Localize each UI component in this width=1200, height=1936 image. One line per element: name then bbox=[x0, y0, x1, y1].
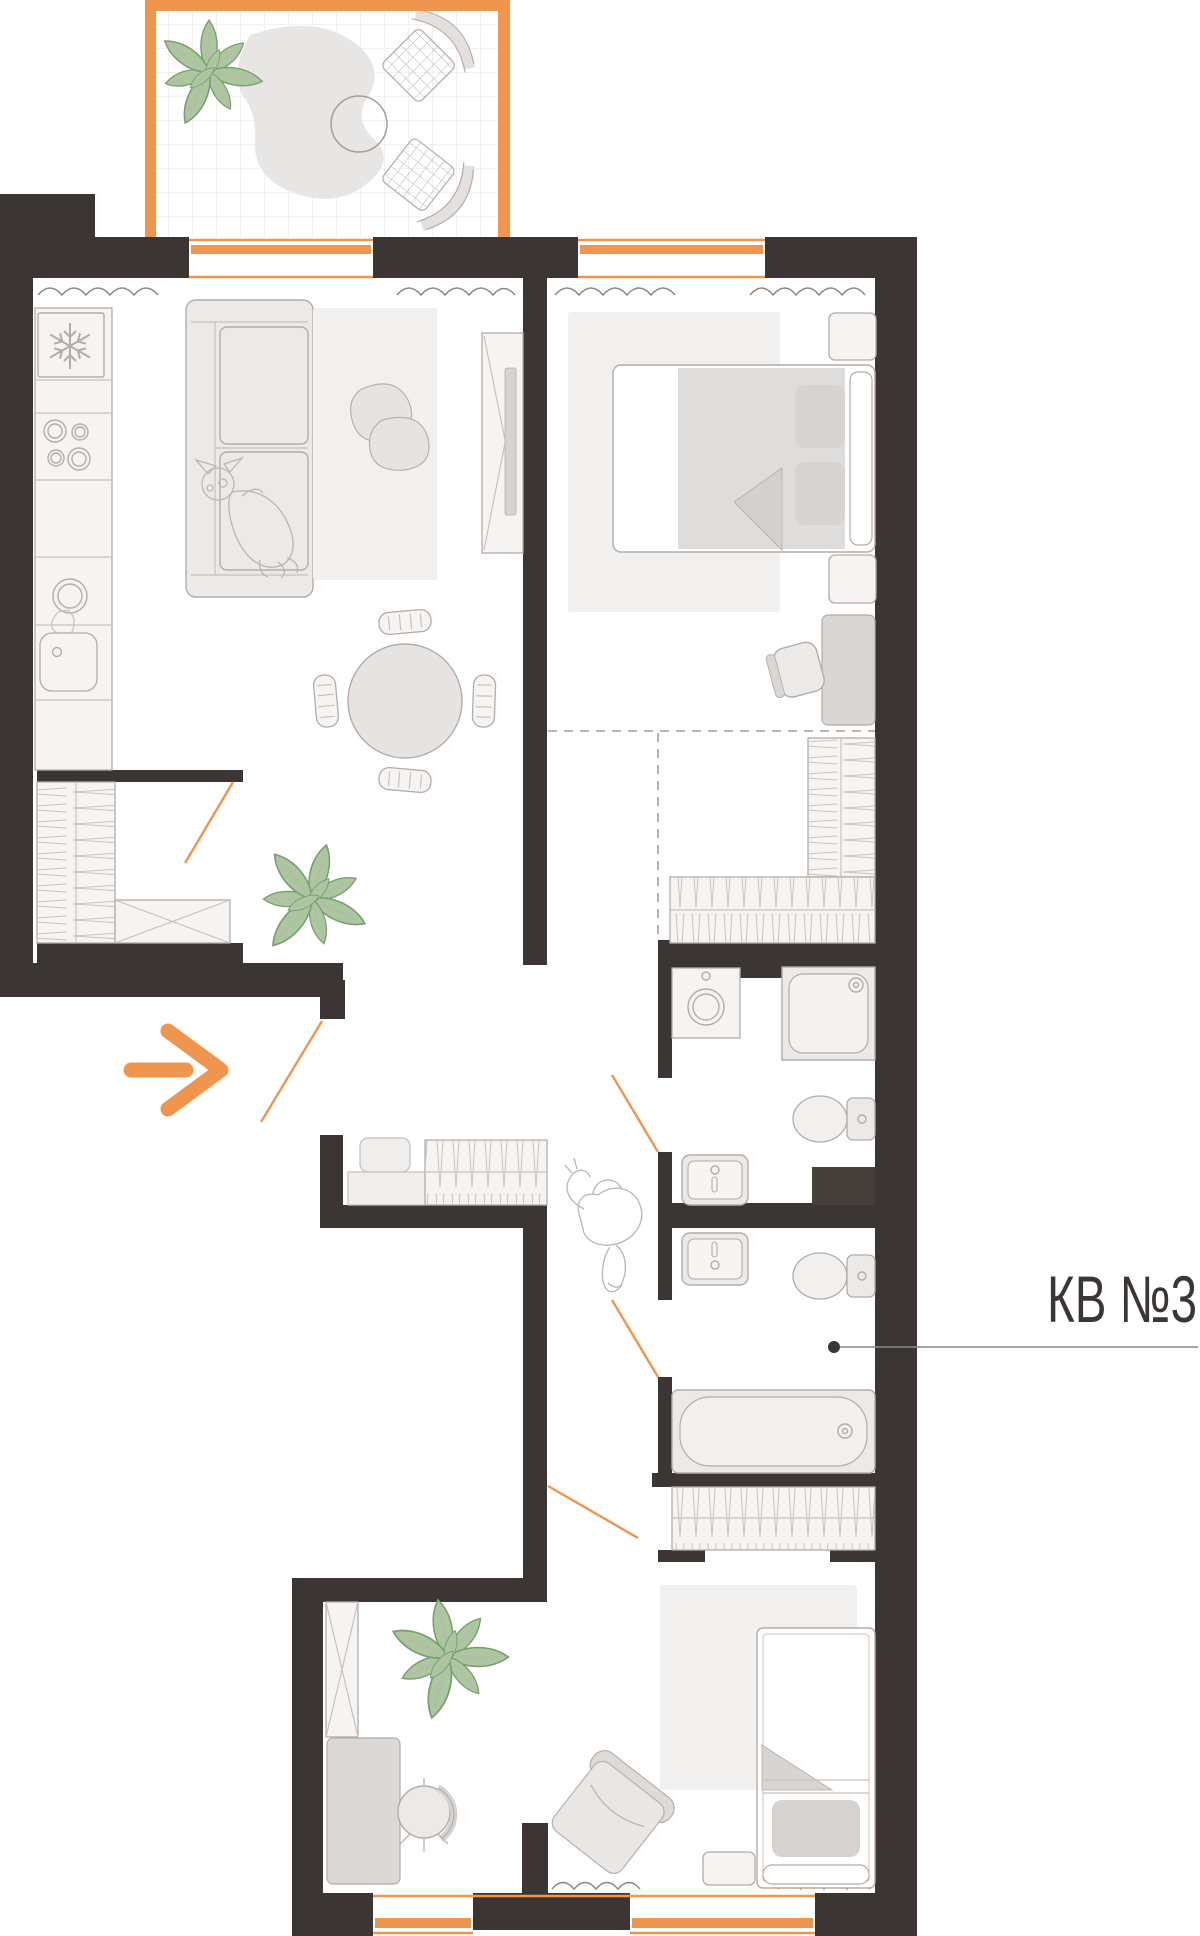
bathroom1-sink bbox=[682, 1155, 748, 1205]
nightstand bbox=[829, 313, 876, 360]
bathroom-2 bbox=[672, 1233, 875, 1473]
balcony-rail-left bbox=[145, 0, 156, 237]
dressing-wardrobe bbox=[670, 738, 875, 943]
duct-box bbox=[812, 1167, 875, 1205]
entry-closet bbox=[37, 782, 230, 943]
wall-bedroom2-top bbox=[292, 1578, 523, 1602]
balcony-rail-top bbox=[145, 0, 510, 11]
bottom-window2-sill bbox=[632, 1918, 813, 1928]
leader-dot bbox=[828, 1341, 840, 1353]
hallway-plant bbox=[246, 831, 384, 971]
wall-wardrobe-return-left bbox=[658, 1550, 705, 1562]
nightstand bbox=[703, 1852, 755, 1885]
desk-chair bbox=[764, 640, 826, 701]
dining-chair bbox=[313, 674, 339, 728]
pillow bbox=[772, 1800, 860, 1857]
entrance-hall bbox=[131, 1031, 642, 1292]
curtain-living bbox=[397, 288, 515, 295]
hall-bench bbox=[348, 1138, 425, 1205]
bed-single bbox=[757, 1628, 875, 1888]
pillow bbox=[795, 462, 845, 525]
wall-entrance-jamb-top bbox=[320, 980, 345, 1019]
wall-segment bbox=[0, 194, 95, 238]
bedroom2-wardrobe bbox=[672, 1487, 875, 1550]
wall-bath2-left bbox=[658, 1228, 672, 1300]
curtain-bedroom-b bbox=[750, 288, 865, 295]
wall-segment bbox=[473, 1893, 630, 1930]
door-entrance bbox=[261, 1021, 322, 1122]
bedroom-2 bbox=[326, 1487, 875, 1888]
floor-plan: КВ №3 bbox=[0, 0, 1200, 1936]
wall-right-exterior bbox=[875, 237, 917, 1936]
tall-cabinet bbox=[326, 1602, 358, 1737]
curtain-kitchen bbox=[38, 288, 158, 295]
hall-wardrobe bbox=[425, 1140, 547, 1205]
office-chair bbox=[398, 1778, 454, 1852]
wall-bath2-bottom bbox=[652, 1473, 875, 1487]
balcony bbox=[145, 0, 510, 237]
balcony-rail-right bbox=[498, 0, 510, 237]
desk bbox=[822, 615, 875, 725]
wall-bath-divider bbox=[658, 1203, 875, 1228]
wall-segment bbox=[815, 1893, 917, 1936]
door-swings bbox=[185, 782, 658, 1538]
wall-segment bbox=[292, 1893, 373, 1936]
bedroom-window-sill bbox=[580, 245, 763, 254]
tv bbox=[505, 368, 516, 515]
washing-machine bbox=[672, 968, 740, 1038]
wall-hall-bottom bbox=[320, 1205, 547, 1228]
wall-hall-top bbox=[0, 963, 343, 997]
floor-plan-drawing bbox=[0, 0, 1200, 1936]
living-rug bbox=[313, 308, 437, 580]
curtain-bedroom-a bbox=[555, 288, 675, 295]
nightstand bbox=[829, 555, 876, 603]
door-bedroom2 bbox=[548, 1486, 638, 1538]
curtain-bedroom2-a bbox=[552, 1883, 640, 1890]
kitchen-living-room bbox=[35, 300, 523, 971]
bed-double bbox=[613, 365, 875, 552]
apartment-label: КВ №3 bbox=[1010, 1266, 1197, 1332]
wall-corridor-left bbox=[523, 1228, 547, 1602]
bedroom-1 bbox=[548, 312, 876, 943]
dining-chair bbox=[378, 767, 432, 793]
dining-chair bbox=[472, 675, 496, 728]
bathtub bbox=[672, 1390, 875, 1473]
wall-entrance-jamb-bottom bbox=[320, 1135, 343, 1208]
balcony-door-sill bbox=[191, 245, 371, 254]
bedroom2-plant bbox=[384, 1589, 519, 1727]
dining-chair bbox=[378, 609, 432, 635]
wall-closet-top bbox=[37, 770, 243, 782]
sofa bbox=[186, 300, 313, 597]
wall-bath1-left bbox=[658, 965, 672, 1078]
dining-table bbox=[348, 644, 462, 758]
armchair bbox=[543, 1745, 679, 1881]
wall-wardrobe-return-right bbox=[830, 1550, 875, 1562]
wall-segment bbox=[373, 237, 578, 278]
wall-closet-bottom bbox=[37, 943, 243, 963]
shower bbox=[782, 967, 875, 1060]
rug-blob bbox=[370, 417, 430, 470]
bottom-window1-sill bbox=[375, 1918, 471, 1928]
toilet bbox=[793, 1253, 875, 1299]
entrance-arrow-icon bbox=[131, 1031, 221, 1109]
wall-bath2-left-stub bbox=[658, 1377, 672, 1473]
person bbox=[565, 1158, 642, 1292]
tv-panel bbox=[482, 333, 523, 553]
door-bathroom2 bbox=[612, 1300, 658, 1377]
wall-left-exterior bbox=[0, 237, 33, 997]
door-bathroom1 bbox=[612, 1075, 658, 1152]
bathroom2-sink bbox=[682, 1233, 748, 1285]
toilet bbox=[793, 1096, 875, 1142]
bedroom2-desk bbox=[327, 1738, 400, 1884]
door-closet bbox=[185, 782, 233, 863]
pillow bbox=[795, 385, 845, 448]
kitchen-sink bbox=[40, 633, 97, 691]
wall-stub-bedroom2 bbox=[522, 1823, 548, 1894]
wall-bedroom2-left bbox=[292, 1602, 323, 1893]
footboard bbox=[763, 1865, 869, 1884]
wall-partition-living-bedroom bbox=[523, 278, 547, 965]
dining-set bbox=[313, 609, 496, 793]
headboard bbox=[850, 372, 872, 545]
